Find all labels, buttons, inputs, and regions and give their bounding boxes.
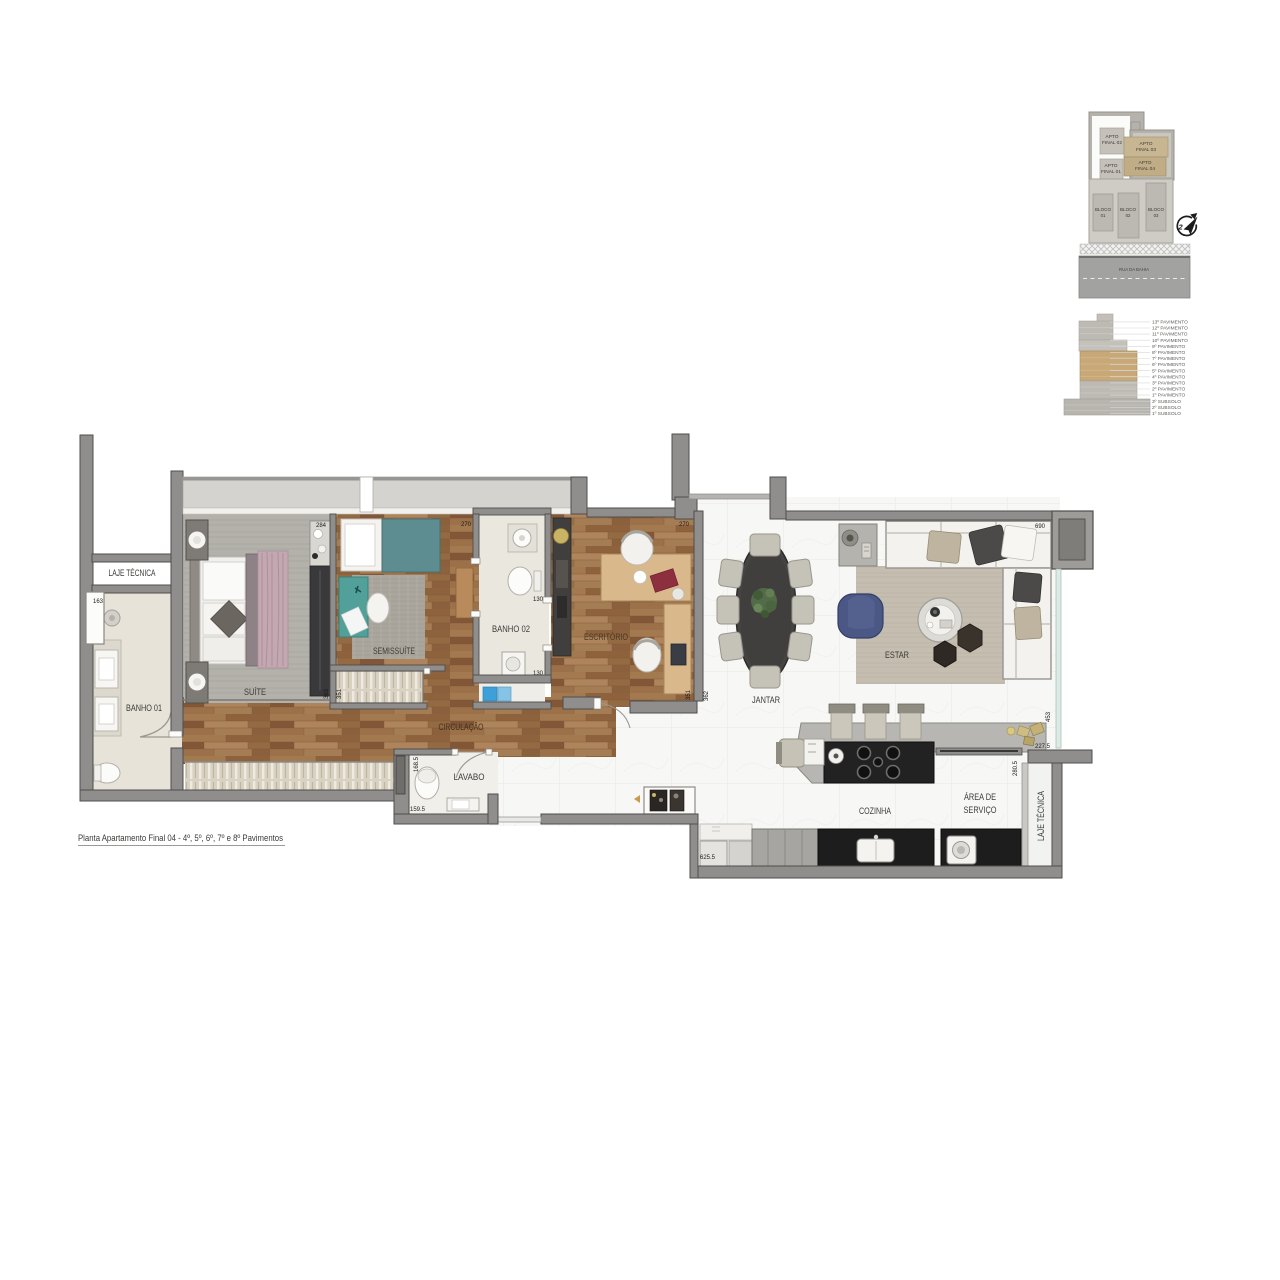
svg-text:3º PAVIMENTO: 3º PAVIMENTO (1152, 381, 1185, 387)
svg-text:625.5: 625.5 (700, 855, 716, 861)
svg-text:FINAL 02: FINAL 02 (1102, 140, 1123, 145)
svg-text:2º PAVIMENTO: 2º PAVIMENTO (1152, 387, 1185, 393)
svg-text:2º SUBSOLO: 2º SUBSOLO (1152, 405, 1181, 411)
svg-text:JANTAR: JANTAR (752, 695, 780, 706)
svg-text:12º PAVIMENTO: 12º PAVIMENTO (1152, 326, 1188, 332)
svg-text:ÁREA DE: ÁREA DE (964, 792, 996, 803)
svg-text:11º PAVIMENTO: 11º PAVIMENTO (1152, 332, 1188, 338)
svg-text:02: 02 (1126, 213, 1131, 218)
svg-text:363: 363 (324, 688, 330, 699)
svg-text:SEMISSUÍTE: SEMISSUÍTE (373, 646, 415, 656)
svg-text:4º PAVIMENTO: 4º PAVIMENTO (1152, 374, 1185, 380)
svg-text:CIRCULAÇÃO: CIRCULAÇÃO (439, 722, 484, 732)
svg-text:APTO: APTO (1139, 160, 1153, 165)
svg-text:362: 362 (704, 690, 710, 701)
svg-text:284: 284 (316, 523, 327, 529)
svg-text:351: 351 (337, 688, 343, 699)
svg-text:227.5: 227.5 (1035, 744, 1051, 750)
svg-text:280.5: 280.5 (1013, 760, 1019, 776)
svg-text:FINAL 03: FINAL 03 (1136, 147, 1157, 152)
svg-text:453: 453 (1046, 711, 1052, 722)
svg-text:168.5: 168.5 (414, 756, 420, 772)
svg-text:ESCRITÓRIO: ESCRITÓRIO (584, 632, 628, 642)
svg-text:01: 01 (1101, 213, 1106, 218)
svg-text:APTO: APTO (1140, 141, 1154, 146)
svg-text:2: 2 (1178, 223, 1184, 232)
svg-text:1º PAVIMENTO: 1º PAVIMENTO (1152, 393, 1185, 399)
svg-text:BLOCO: BLOCO (1148, 207, 1165, 212)
svg-text:163: 163 (93, 599, 104, 605)
svg-text:270: 270 (679, 522, 690, 528)
svg-text:LAVABO: LAVABO (454, 772, 485, 783)
svg-text:SERVIÇO: SERVIÇO (964, 805, 997, 816)
svg-text:BANHO 01: BANHO 01 (126, 703, 162, 714)
svg-text:6º PAVIMENTO: 6º PAVIMENTO (1152, 362, 1185, 368)
svg-text:Planta Apartamento Final 04 -: Planta Apartamento Final 04 - 4º, 5º, 6º… (78, 833, 283, 844)
svg-text:BLOCO: BLOCO (1120, 207, 1137, 212)
svg-text:7º PAVIMENTO: 7º PAVIMENTO (1152, 356, 1185, 362)
svg-text:10º PAVIMENTO: 10º PAVIMENTO (1152, 338, 1188, 344)
svg-text:3º SUBSOLO: 3º SUBSOLO (1152, 399, 1181, 405)
svg-text:ESTAR: ESTAR (885, 650, 909, 661)
svg-text:8º PAVIMENTO: 8º PAVIMENTO (1152, 350, 1185, 356)
svg-text:130: 130 (533, 671, 544, 677)
svg-text:5º PAVIMENTO: 5º PAVIMENTO (1152, 368, 1185, 374)
svg-text:9º PAVIMENTO: 9º PAVIMENTO (1152, 344, 1185, 350)
svg-text:03: 03 (1154, 213, 1159, 218)
svg-text:FINAL 04: FINAL 04 (1135, 166, 1156, 171)
svg-text:APTO: APTO (1105, 163, 1119, 168)
svg-text:159.5: 159.5 (410, 807, 426, 813)
svg-text:13º PAVIMENTO: 13º PAVIMENTO (1152, 320, 1188, 326)
svg-text:270: 270 (461, 522, 472, 528)
svg-text:APTO: APTO (1106, 134, 1120, 139)
svg-text:RUA DA BAHIA: RUA DA BAHIA (1119, 267, 1150, 272)
svg-text:FINAL 01: FINAL 01 (1101, 169, 1122, 174)
svg-text:SUÍTE: SUÍTE (244, 687, 266, 698)
svg-text:1º SUBSOLO: 1º SUBSOLO (1152, 411, 1181, 417)
svg-text:COZINHA: COZINHA (859, 806, 891, 817)
svg-text:BLOCO: BLOCO (1095, 207, 1112, 212)
svg-text:351: 351 (686, 689, 692, 700)
svg-text:BANHO 02: BANHO 02 (492, 624, 530, 634)
svg-text:LAJE TÉCNICA: LAJE TÉCNICA (1036, 791, 1046, 841)
svg-text:690: 690 (1035, 524, 1046, 530)
svg-text:130: 130 (533, 597, 544, 603)
svg-text:LAJE TÉCNICA: LAJE TÉCNICA (109, 568, 156, 579)
